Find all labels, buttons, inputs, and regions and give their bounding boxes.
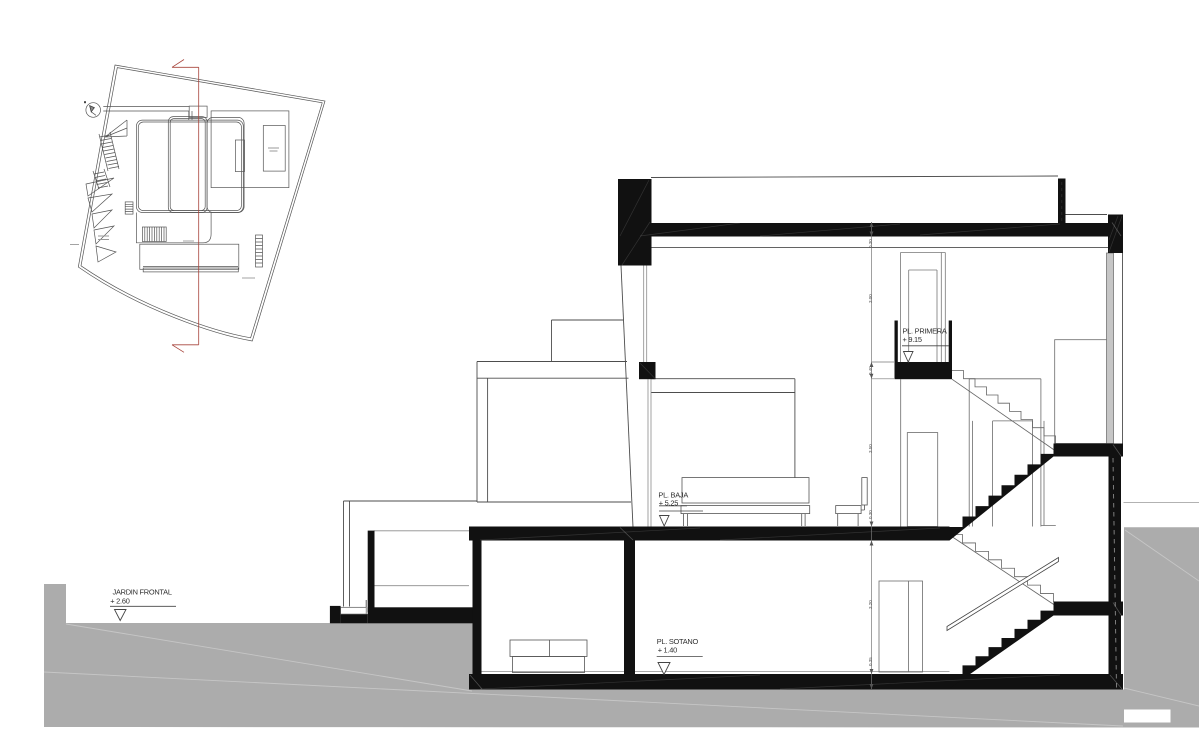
svg-text:JARDIN FRONTAL: JARDIN FRONTAL [113,588,172,597]
svg-text:0.30: 0.30 [868,239,873,248]
svg-text:3.20: 3.20 [868,600,873,609]
svg-text:0.35: 0.35 [868,657,873,666]
svg-text:+ 9.15: + 9.15 [903,335,922,344]
svg-text:+ 2.60: + 2.60 [110,597,129,606]
svg-text:3.00: 3.00 [868,294,873,303]
svg-text:3.50: 3.50 [868,444,873,453]
svg-text:0.40: 0.40 [868,366,873,375]
svg-text:+ 1.40: + 1.40 [658,646,677,655]
svg-text:0.30: 0.30 [868,510,873,519]
